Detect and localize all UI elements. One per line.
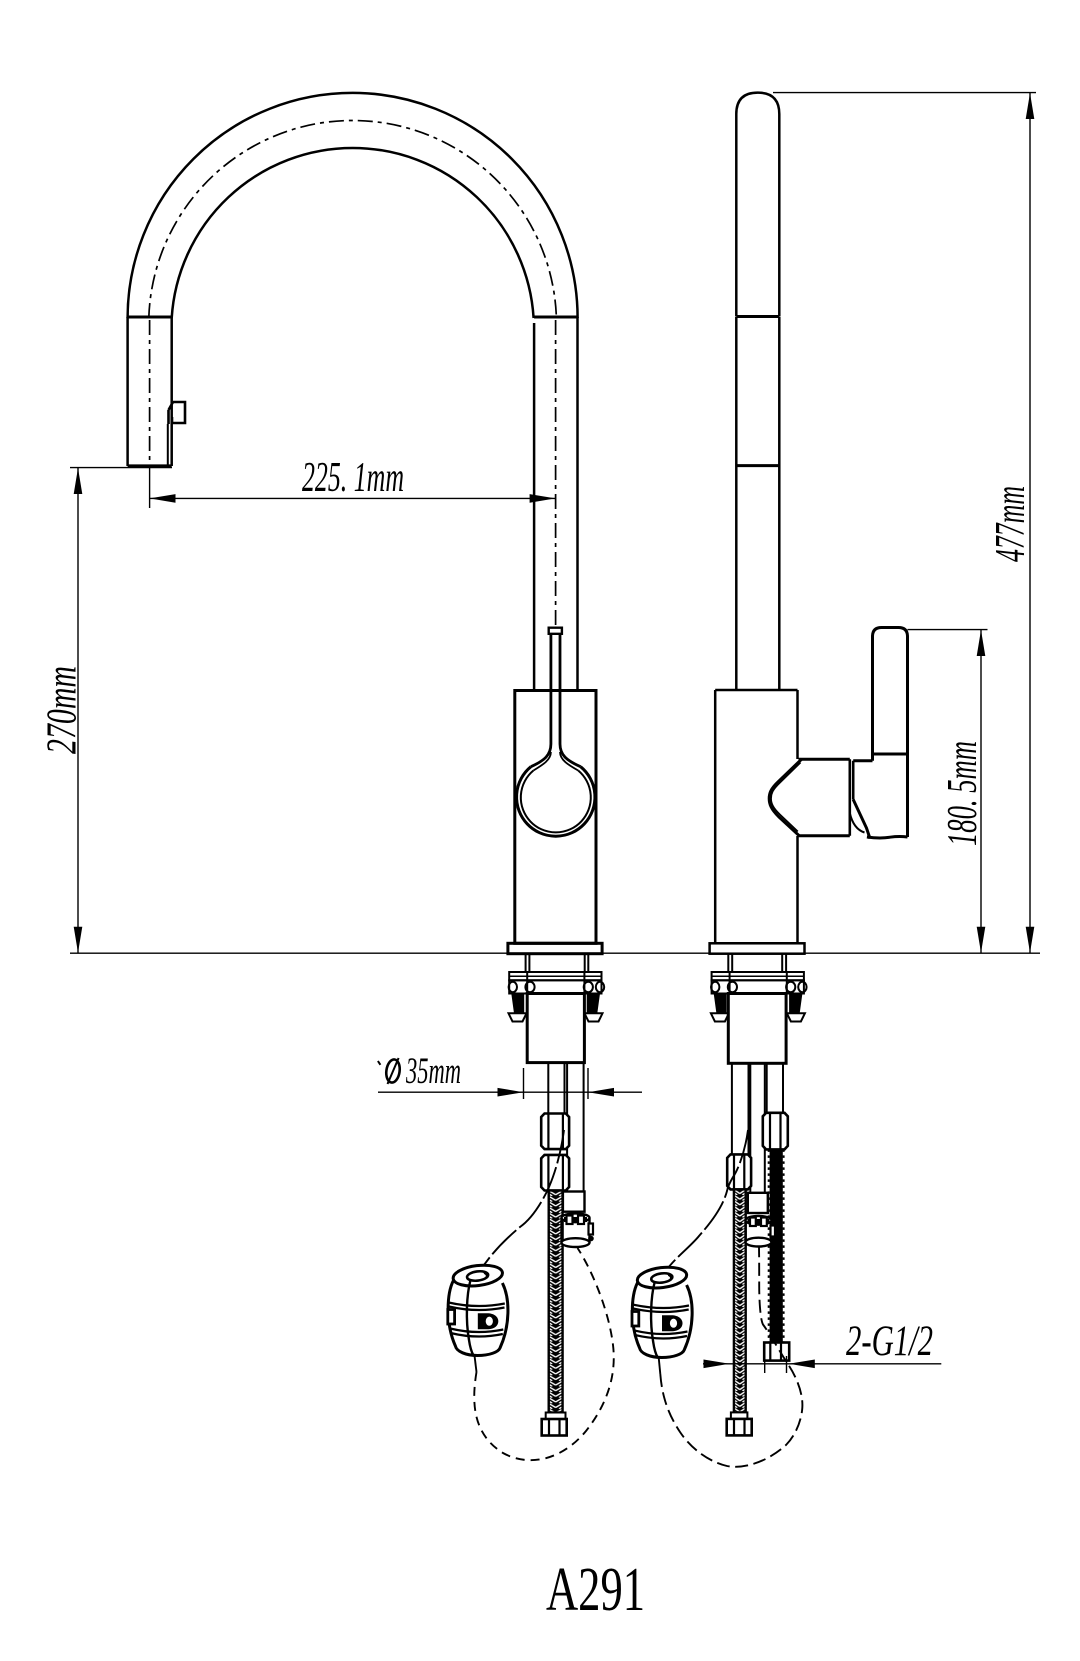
svg-text:270mm: 270mm — [40, 666, 86, 754]
svg-text:2-G1/2: 2-G1/2 — [846, 1318, 933, 1365]
svg-text:180. 5mm: 180. 5mm — [940, 741, 986, 846]
svg-text:225. 1mm: 225. 1mm — [302, 455, 404, 501]
svg-text:35mm: 35mm — [405, 1051, 461, 1092]
svg-text:477mm: 477mm — [988, 486, 1034, 562]
svg-text:A291: A291 — [546, 1556, 645, 1624]
